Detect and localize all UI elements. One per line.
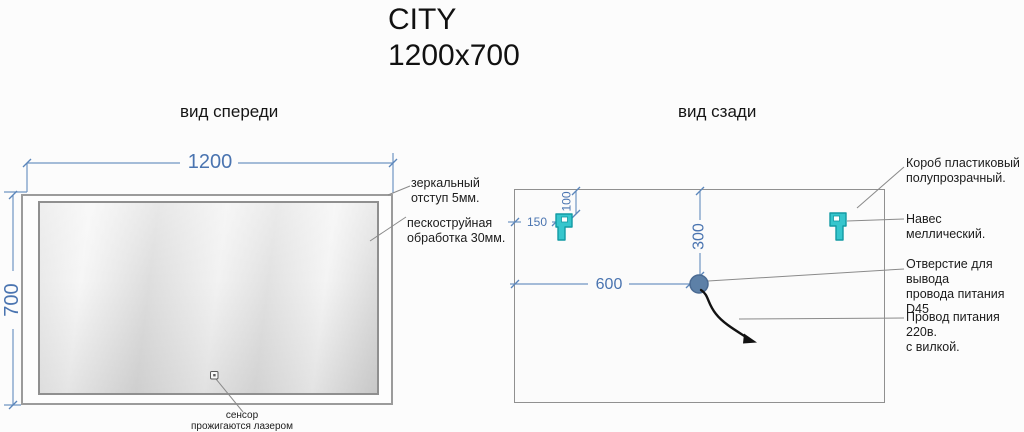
annotation-linework: [0, 0, 1024, 432]
technical-drawing-page: CITY 1200x700 вид спереди вид сзади 1200…: [0, 0, 1024, 432]
dimension-lines: [4, 153, 700, 405]
power-cord-icon: [701, 290, 757, 344]
sensor-icon: [211, 372, 219, 380]
leader-lines: [216, 167, 904, 412]
hanger-bracket-icon: [830, 213, 846, 240]
dimension-ticks: [9, 159, 704, 409]
cable-hole-icon: [690, 275, 708, 293]
hanger-bracket-icon: [556, 214, 572, 240]
